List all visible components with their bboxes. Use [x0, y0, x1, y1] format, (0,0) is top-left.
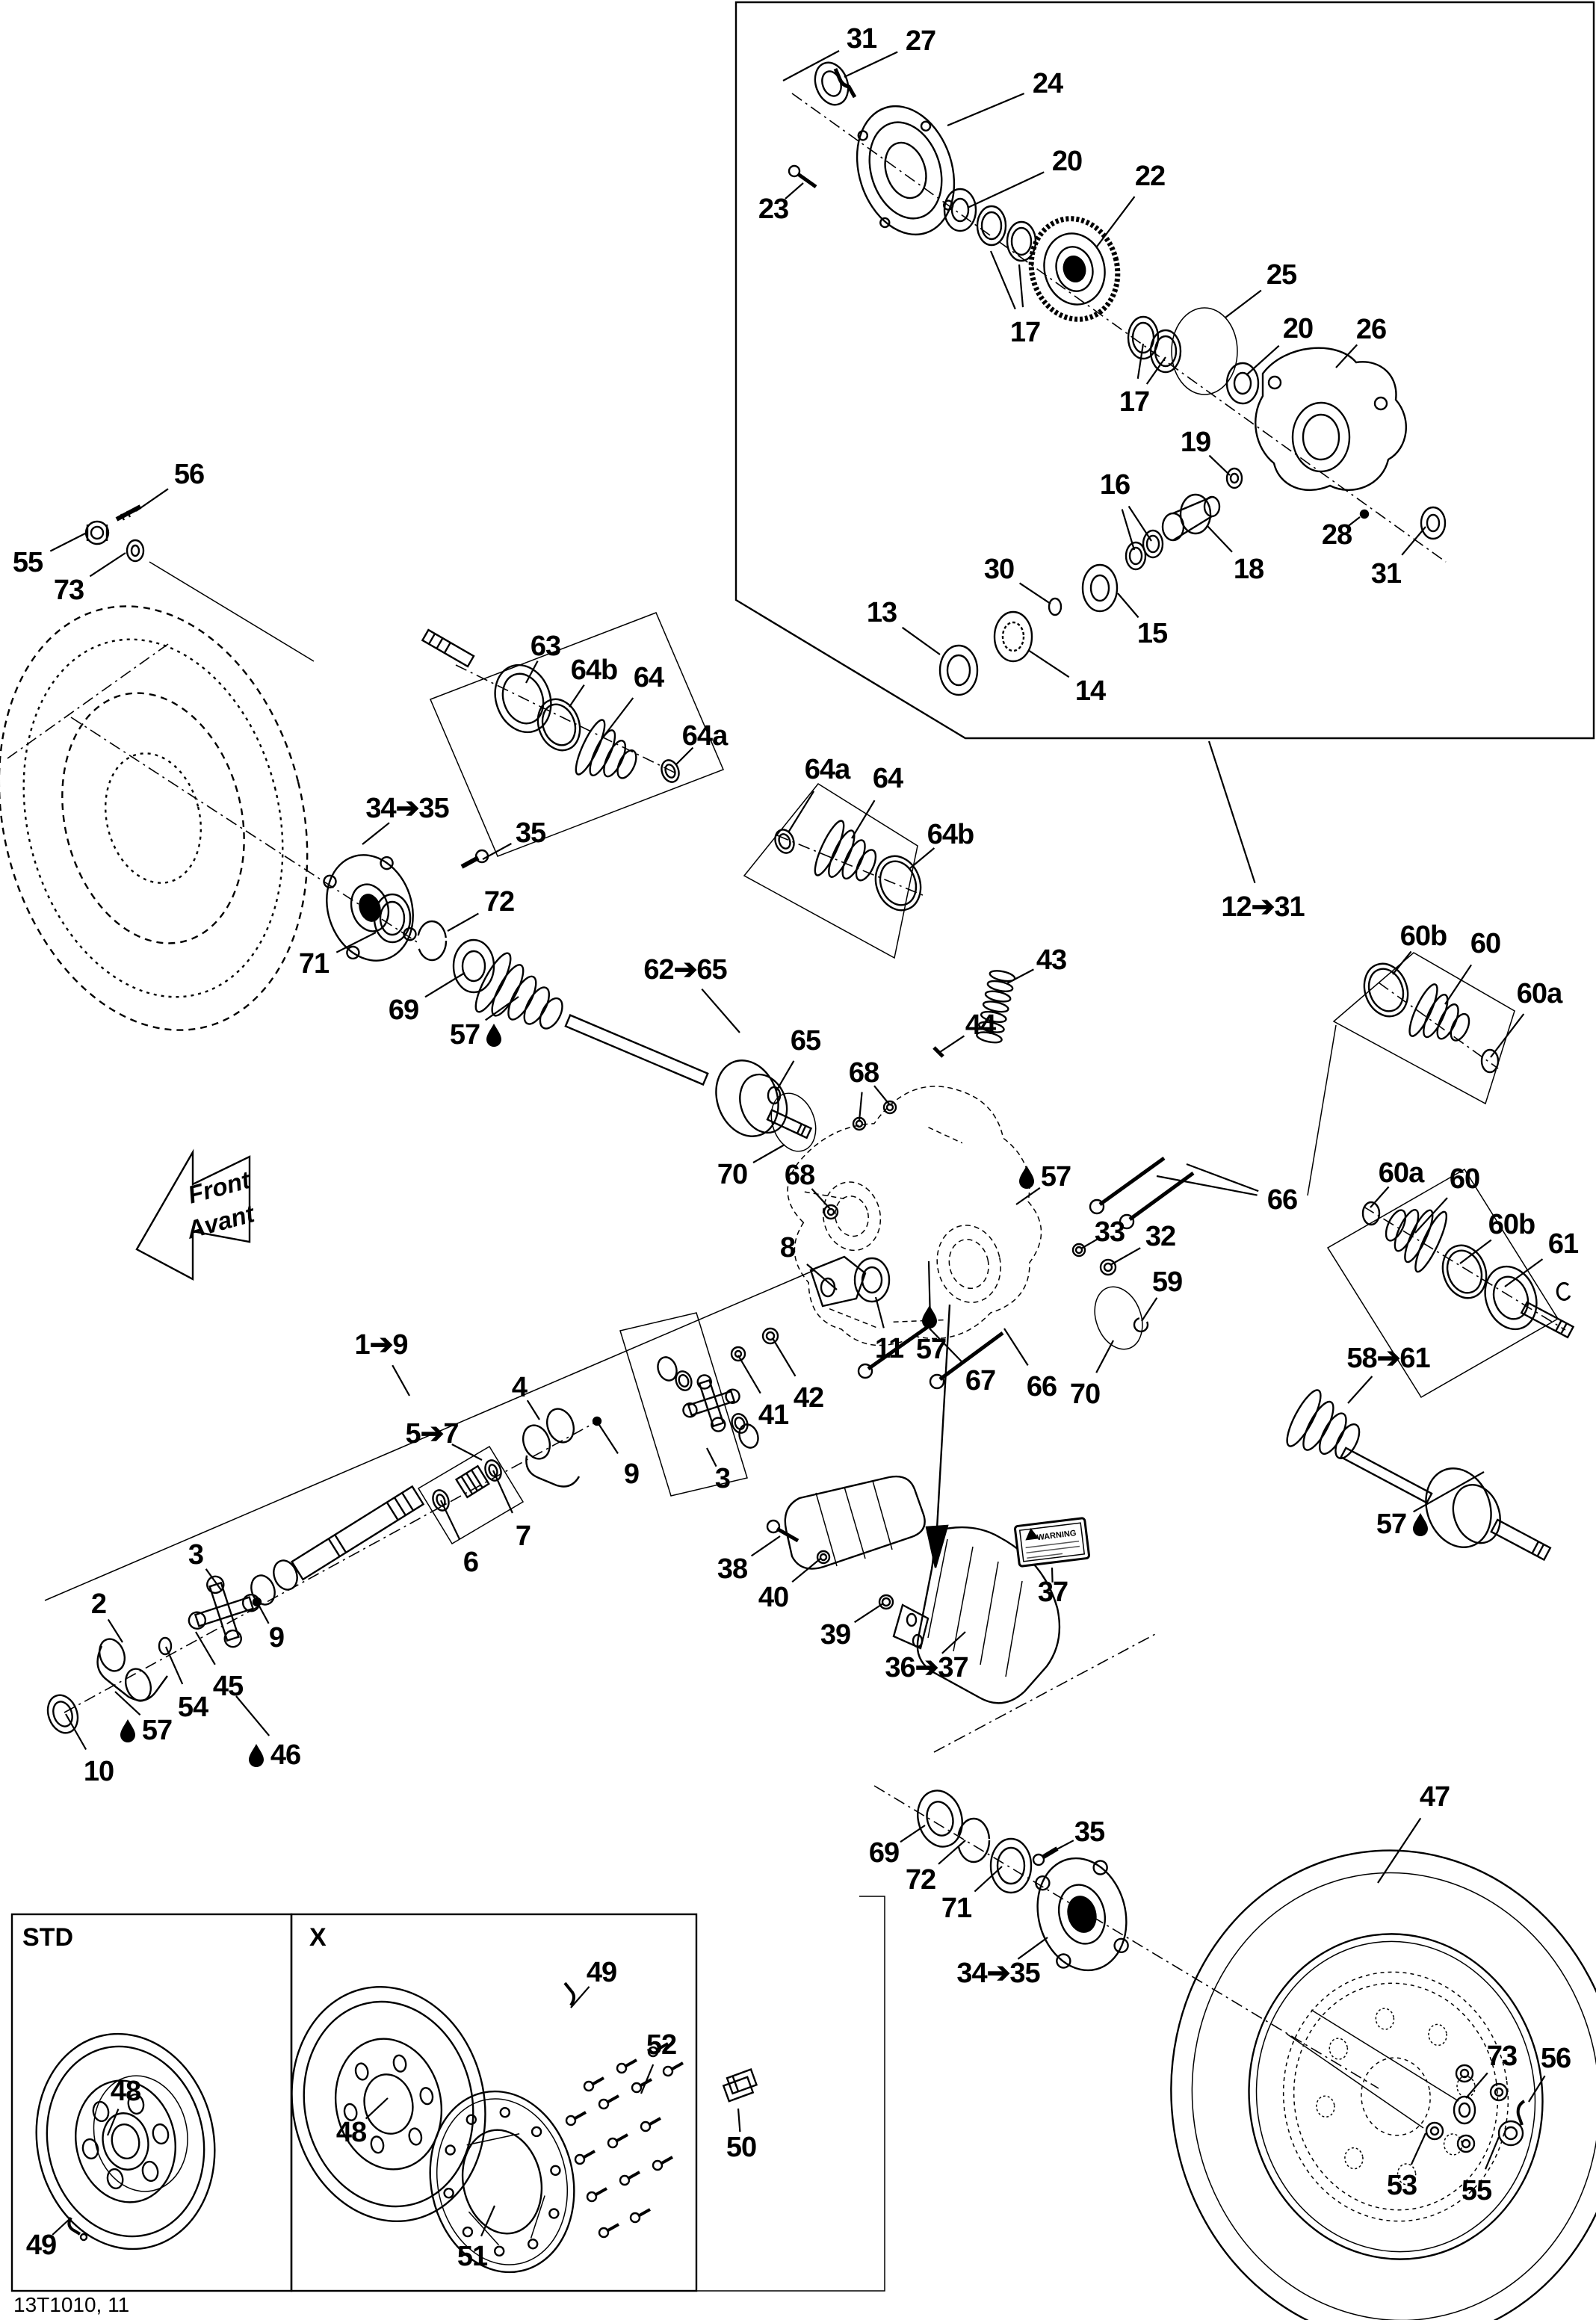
leader-line [811, 1189, 830, 1209]
part-label-60a: 60a [1379, 1157, 1425, 1189]
part-label-31: 31 [1371, 558, 1402, 590]
part-label-4: 4 [512, 1372, 528, 1403]
leader-line [1097, 197, 1135, 247]
leader-line [1050, 1840, 1074, 1853]
part-label-57: 57 [1041, 1161, 1071, 1193]
leader-line [776, 1061, 794, 1091]
cover-24 [841, 93, 970, 247]
part-label-73: 73 [1487, 2041, 1517, 2072]
nut-55 [86, 522, 108, 544]
shims-17-left [977, 206, 1036, 261]
part-label-60a: 60a [1517, 978, 1563, 1009]
leader-line [196, 1632, 215, 1665]
x-section-label: X [309, 1923, 327, 1952]
part-label-61: 61 [1548, 1228, 1579, 1260]
beadlock-bolts-52 [566, 2044, 683, 2237]
front-direction-arrow: Front Avant [137, 1152, 259, 1279]
part-label-54: 54 [178, 1692, 208, 1723]
rear-tire-47 [1139, 1821, 1596, 2320]
part-label-30: 30 [984, 554, 1014, 585]
part-label-51: 51 [457, 2241, 488, 2272]
seal-31 [809, 58, 853, 110]
o-ring-70-right [1086, 1280, 1151, 1355]
leader-line [1370, 1187, 1389, 1207]
part-label-57: 57 [916, 1334, 946, 1365]
rear-wheel-fasteners [1426, 2065, 1524, 2152]
shim-kit-50 [722, 2070, 759, 2102]
tire-leader-axis [7, 644, 168, 758]
leader-line [1414, 1472, 1484, 1512]
part-label-40: 40 [758, 1582, 788, 1613]
leader-line [910, 848, 934, 868]
leader-line [362, 823, 389, 844]
seal-71-rear [991, 1839, 1031, 1893]
part-label-43: 43 [1036, 944, 1066, 976]
leader-line [486, 997, 519, 1020]
part-label-24: 24 [1033, 68, 1063, 99]
part-label-13: 13 [867, 597, 897, 628]
leader-line [1018, 1937, 1048, 1959]
part-label-57: 57 [450, 1019, 480, 1051]
washer-33 [1073, 1244, 1085, 1256]
part-label-27: 27 [906, 25, 935, 57]
leader-line [1007, 969, 1033, 983]
part-label-57: 57 [142, 1715, 172, 1746]
leader-line [1004, 1328, 1028, 1365]
part-label-9: 9 [624, 1458, 639, 1490]
leader-line [1348, 1376, 1372, 1403]
part-label-63: 63 [531, 631, 560, 662]
leader-line [855, 1603, 883, 1622]
part-label-26: 26 [1356, 314, 1386, 345]
warning-sticker-37: WARNING [1015, 1518, 1089, 1566]
part-label-7: 7 [516, 1521, 531, 1552]
leader-line [968, 172, 1044, 208]
part-label-55: 55 [13, 547, 43, 578]
part-label-19: 19 [1181, 427, 1210, 458]
leader-line [1129, 507, 1151, 542]
leader-line [392, 1365, 409, 1396]
pin-44 [934, 1048, 943, 1057]
part-label-31: 31 [847, 23, 877, 55]
part-label-14: 14 [1075, 675, 1106, 707]
part-label-5➔7: 5➔7 [405, 1418, 458, 1450]
part-label-67: 67 [965, 1365, 995, 1396]
stud-line-2 [1287, 2034, 1423, 2128]
leader-line [448, 914, 478, 931]
lubricant-drop-icon [249, 1744, 264, 1767]
lubricant-drop-icon [486, 1024, 501, 1047]
washer-40 [817, 1551, 829, 1563]
leader-lines-layer [50, 51, 1544, 2236]
leader-line [1028, 650, 1069, 677]
leader-line [752, 1536, 780, 1556]
part-label-70: 70 [717, 1159, 747, 1190]
accessory-compartment [696, 1896, 885, 2291]
leader-line [569, 685, 584, 707]
leader-line [738, 2109, 740, 2132]
washers-16 [1126, 530, 1163, 569]
part-label-62➔65: 62➔65 [643, 954, 727, 986]
leader-line [1207, 526, 1232, 552]
bushing-19 [1227, 468, 1242, 488]
part-label-32: 32 [1145, 1221, 1175, 1252]
leader-line [1402, 527, 1426, 555]
part-label-17: 17 [1119, 386, 1149, 418]
seal-71-front [374, 894, 410, 942]
leader-line [1246, 346, 1279, 375]
part-label-53: 53 [1387, 2170, 1417, 2201]
part-label-10: 10 [84, 1756, 114, 1787]
o-ring-30 [1049, 598, 1061, 615]
snap-ring-72-front [418, 921, 446, 960]
part-label-68: 68 [849, 1057, 879, 1089]
part-label-66: 66 [1027, 1371, 1057, 1402]
part-label-52: 52 [646, 2029, 676, 2061]
leader-line [441, 1500, 460, 1539]
leader-line [859, 1092, 862, 1121]
part-label-34➔35: 34➔35 [365, 793, 449, 824]
leader-line [528, 1400, 539, 1420]
leader-line [136, 489, 168, 511]
gear-14 [995, 612, 1032, 661]
u-joint-cross-3-lower [178, 1565, 270, 1657]
front-differential-housing [767, 1069, 1060, 1364]
part-label-16: 16 [1100, 469, 1130, 501]
leader-line [773, 1338, 796, 1376]
kit-link-line [1308, 1025, 1336, 1195]
part-label-69: 69 [389, 994, 418, 1026]
diagram-canvas: WARNING [0, 0, 1596, 2320]
part-label-37: 37 [1038, 1577, 1068, 1608]
front-drive-shaft [470, 950, 811, 1147]
part-label-25: 25 [1266, 259, 1297, 291]
part-label-70: 70 [1070, 1379, 1100, 1410]
lubricant-drop-icon [120, 1719, 135, 1742]
leader-line [1138, 344, 1143, 379]
part-label-20: 20 [1283, 313, 1313, 344]
leader-line [1225, 291, 1261, 318]
part-label-1➔9: 1➔9 [354, 1329, 407, 1361]
part-label-41: 41 [758, 1399, 789, 1431]
leader-line [876, 1297, 884, 1328]
leader-line [366, 2098, 388, 2119]
part-label-56: 56 [1541, 2043, 1571, 2074]
beadlock-ring-51 [414, 2078, 591, 2286]
part-label-3: 3 [188, 1539, 203, 1571]
part-label-23: 23 [758, 194, 788, 225]
stud-line-1 [1311, 2010, 1459, 2101]
leader-line [1122, 510, 1134, 550]
washer-73 [127, 540, 143, 561]
leader-line [1187, 1164, 1258, 1191]
leader-line [1336, 344, 1357, 368]
part-label-71: 71 [299, 948, 330, 980]
skid-plate-front [785, 1476, 925, 1568]
leader-line [940, 1036, 964, 1052]
part-label-49: 49 [587, 1957, 616, 1988]
leader-line [1019, 265, 1023, 307]
part-label-11: 11 [875, 1333, 904, 1364]
parts-diagram-page: WARNING [0, 0, 1596, 2320]
part-label-44: 44 [965, 1009, 996, 1041]
part-label-60: 60 [1450, 1163, 1479, 1195]
leader-line [1491, 1014, 1524, 1057]
leader-line [1485, 2137, 1499, 2169]
housing-26 [1255, 348, 1406, 490]
part-label-65: 65 [791, 1025, 821, 1057]
snap-ring-72-rear [958, 1819, 989, 1862]
yoke-bracket-8 [811, 1257, 865, 1306]
part-label-33: 33 [1095, 1216, 1125, 1248]
std-wheel-48 [16, 2017, 234, 2266]
boot-kit-box-63-64 [430, 613, 723, 856]
propshaft-axis [64, 1421, 598, 1713]
washer-leader-ext [149, 562, 314, 661]
part-label-35: 35 [516, 817, 546, 849]
part-label-60b: 60b [1488, 1209, 1535, 1240]
bearing-69-front [454, 940, 494, 992]
part-label-66: 66 [1267, 1184, 1297, 1216]
part-label-9: 9 [269, 1622, 284, 1654]
leader-line [602, 698, 633, 738]
boot-kit-axis-b [777, 835, 923, 895]
part-label-50: 50 [726, 2132, 756, 2163]
leader-line [90, 553, 126, 576]
leader-line [753, 1145, 785, 1163]
part-label-39: 39 [820, 1619, 850, 1651]
leader-line [844, 52, 897, 78]
leader-line [1096, 1340, 1113, 1373]
bearing-69-rear [912, 1786, 968, 1852]
leader-line [1209, 741, 1255, 883]
part-label-64a: 64a [682, 720, 729, 752]
footer-part-code: 13T1010, 11 [13, 2293, 129, 2316]
part-label-45: 45 [213, 1671, 244, 1702]
part-label-64: 64 [873, 763, 903, 794]
leader-line [598, 1423, 618, 1453]
boot-kit-c [1357, 958, 1498, 1072]
part-label-64: 64 [634, 662, 664, 693]
leader-line [50, 533, 85, 551]
part-label-28: 28 [1322, 519, 1352, 551]
cotter-pin-56 [1518, 2101, 1524, 2125]
leader-line [1411, 2133, 1426, 2165]
leader-line [788, 791, 814, 832]
leader-line [874, 1086, 890, 1105]
part-label-38: 38 [717, 1553, 747, 1585]
leader-line [1118, 593, 1139, 617]
part-label-42: 42 [794, 1382, 823, 1414]
lubricant-drop-icon [1019, 1166, 1034, 1189]
leader-line [783, 51, 839, 81]
part-label-36➔37: 36➔37 [885, 1652, 968, 1683]
x-wheel-box [291, 1914, 696, 2291]
part-label-46: 46 [270, 1739, 300, 1771]
leader-line [1147, 357, 1166, 384]
part-label-64b: 64b [927, 819, 974, 850]
boot-kit-b [772, 818, 928, 917]
part-label-72: 72 [906, 1864, 935, 1896]
part-label-48: 48 [336, 2117, 366, 2148]
part-label-2: 2 [91, 1589, 106, 1620]
lubricant-drop-icon [922, 1305, 937, 1328]
part-label-6: 6 [463, 1547, 478, 1578]
part-label-20: 20 [1052, 146, 1082, 177]
part-label-18: 18 [1234, 554, 1263, 585]
part-label-48: 48 [111, 2076, 140, 2107]
part-label-68: 68 [785, 1160, 814, 1191]
leader-line [1393, 951, 1411, 974]
part-label-8: 8 [780, 1232, 795, 1263]
std-section-label: STD [22, 1923, 73, 1952]
seal-13 [940, 646, 977, 695]
leader-line [738, 1355, 761, 1393]
leader-line [1142, 1298, 1157, 1321]
leader-line [702, 989, 740, 1033]
leader-line [852, 800, 875, 838]
leader-line [900, 1825, 925, 1842]
part-label-3: 3 [715, 1463, 730, 1494]
part-label-22: 22 [1135, 161, 1165, 192]
part-label-69: 69 [869, 1837, 899, 1869]
part-label-58➔61: 58➔61 [1346, 1343, 1430, 1374]
stud-56 [117, 507, 140, 520]
seal-31-right [1421, 507, 1445, 539]
prop-shaft [43, 1405, 601, 1737]
part-labels-layer: 3127242022232520261717191628183130131514… [13, 23, 1579, 2272]
x-wheel-48 [270, 1969, 507, 2239]
leader-line [641, 2064, 653, 2094]
part-label-47: 47 [1420, 1781, 1450, 1813]
clip-59 [1134, 1318, 1148, 1331]
leader-line [1020, 583, 1051, 604]
front-tire [0, 573, 350, 1063]
nut-39 [879, 1595, 893, 1609]
part-label-59: 59 [1152, 1266, 1182, 1298]
leader-line [1445, 965, 1471, 1004]
part-label-60b: 60b [1400, 921, 1447, 952]
bolt-38 [767, 1521, 798, 1541]
part-label-64b: 64b [571, 655, 617, 686]
part-label-57: 57 [1376, 1509, 1406, 1540]
bearing-15 [1083, 565, 1117, 611]
part-label-12➔31: 12➔31 [1221, 891, 1305, 923]
valve-stem-49-x [565, 1983, 574, 2005]
leader-line [991, 251, 1015, 309]
part-label-72: 72 [484, 886, 514, 918]
leader-line [974, 1866, 1002, 1892]
rear-wheel-hub-34 [1025, 1849, 1138, 1981]
bushing-32 [1101, 1260, 1116, 1275]
leader-line [947, 93, 1024, 126]
leader-line [481, 2206, 495, 2236]
u-joint-kit-3 [655, 1328, 778, 1450]
part-label-15: 15 [1137, 618, 1168, 649]
part-label-49: 49 [26, 2230, 56, 2261]
bearing-11 [855, 1258, 889, 1302]
pinion-shaft-18 [1163, 495, 1219, 540]
leader-line [493, 1470, 513, 1513]
boot-kit-box-64 [744, 784, 918, 958]
part-label-71: 71 [941, 1893, 972, 1924]
part-label-56: 56 [174, 459, 204, 490]
leader-line [1209, 456, 1230, 475]
rear-link-axis [934, 1633, 1157, 1752]
leader-line [483, 844, 511, 859]
leader-line [1415, 1198, 1447, 1233]
part-label-55: 55 [1462, 2175, 1492, 2206]
part-label-17: 17 [1010, 317, 1040, 348]
lubricant-drop-icon [1413, 1513, 1428, 1536]
leader-line [1110, 1248, 1140, 1265]
part-label-34➔35: 34➔35 [956, 1958, 1040, 1989]
screw-28 [1361, 510, 1368, 518]
leader-line [903, 628, 940, 655]
part-label-35: 35 [1074, 1816, 1105, 1848]
part-label-64a: 64a [805, 754, 851, 785]
part-label-60: 60 [1470, 928, 1500, 959]
part-label-73: 73 [54, 575, 84, 606]
